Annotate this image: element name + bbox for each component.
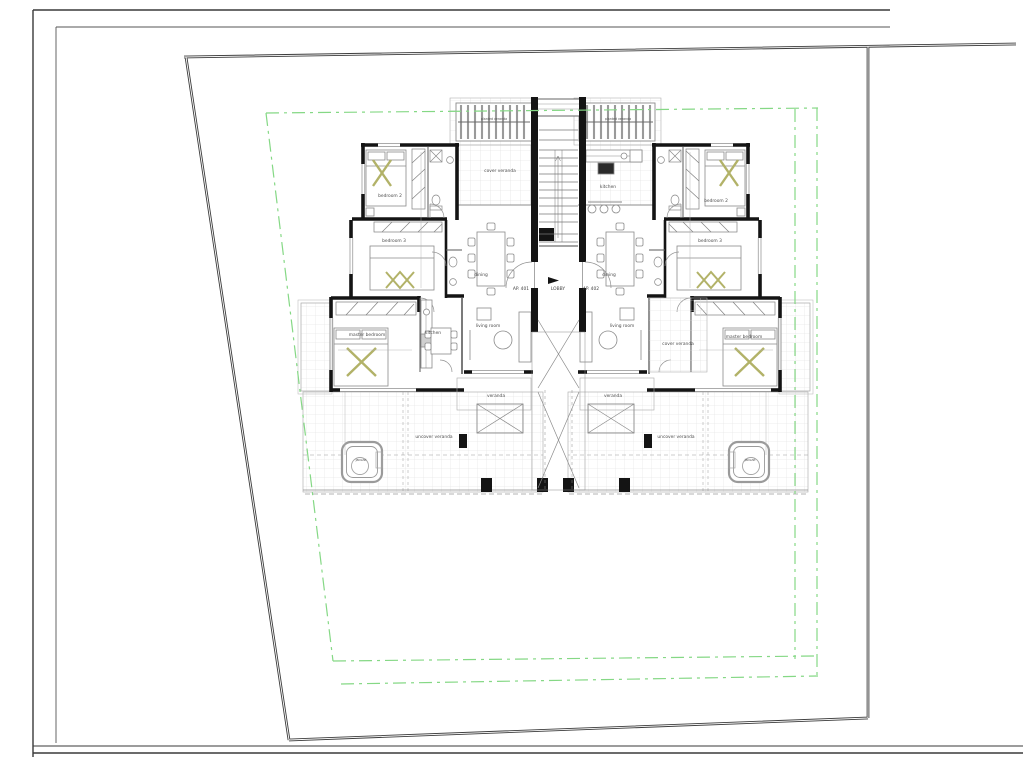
- label-left-jacuzzi: jacuzzi: [355, 458, 367, 462]
- label-left-pergola: planted veranda: [481, 117, 507, 121]
- label-left-uncover-veranda: uncover veranda: [415, 434, 453, 440]
- label-right-cover-veranda: cover veranda: [662, 341, 694, 347]
- label-lobby: LOBBY: [551, 286, 566, 292]
- label-right-uncover-veranda: uncover veranda: [657, 434, 695, 440]
- label-right-dining: dining: [602, 272, 616, 278]
- label-apartment-402: AP. 402: [583, 286, 599, 292]
- label-left-bedroom2: bedroom 2: [378, 193, 402, 199]
- label-left-cover-veranda: cover veranda: [484, 168, 516, 174]
- floor-plan-sheet: bedroom 2 bedroom 3 master bedroom kitch…: [0, 0, 1024, 768]
- label-left-kitchen: kitchen: [425, 330, 441, 336]
- label-right-kitchen: kitchen: [600, 184, 616, 190]
- building: [298, 97, 813, 494]
- label-left-living: living room: [476, 323, 501, 329]
- label-right-bedroom3: bedroom 3: [698, 238, 722, 244]
- label-right-pergola: planted veranda: [605, 117, 631, 121]
- label-left-bedroom3: bedroom 3: [382, 238, 406, 244]
- label-right-bedroom2: bedroom 2: [704, 198, 728, 204]
- label-left-master: master bedroom: [349, 332, 386, 338]
- label-left-veranda: veranda: [487, 393, 505, 399]
- label-right-jacuzzi: jacuzzi: [744, 458, 756, 462]
- label-right-veranda: veranda: [604, 393, 622, 399]
- label-left-dining: dining: [474, 272, 488, 278]
- lobby-doors: [506, 262, 611, 288]
- label-right-master: master bedroom: [726, 334, 763, 340]
- label-right-living: living room: [610, 323, 635, 329]
- right-cover-veranda-area: [649, 298, 707, 372]
- entrance-arrow-icon: [548, 277, 559, 284]
- floor-plan-drawing: bedroom 2 bedroom 3 master bedroom kitch…: [0, 0, 1024, 768]
- label-apartment-401: AP. 401: [513, 286, 529, 292]
